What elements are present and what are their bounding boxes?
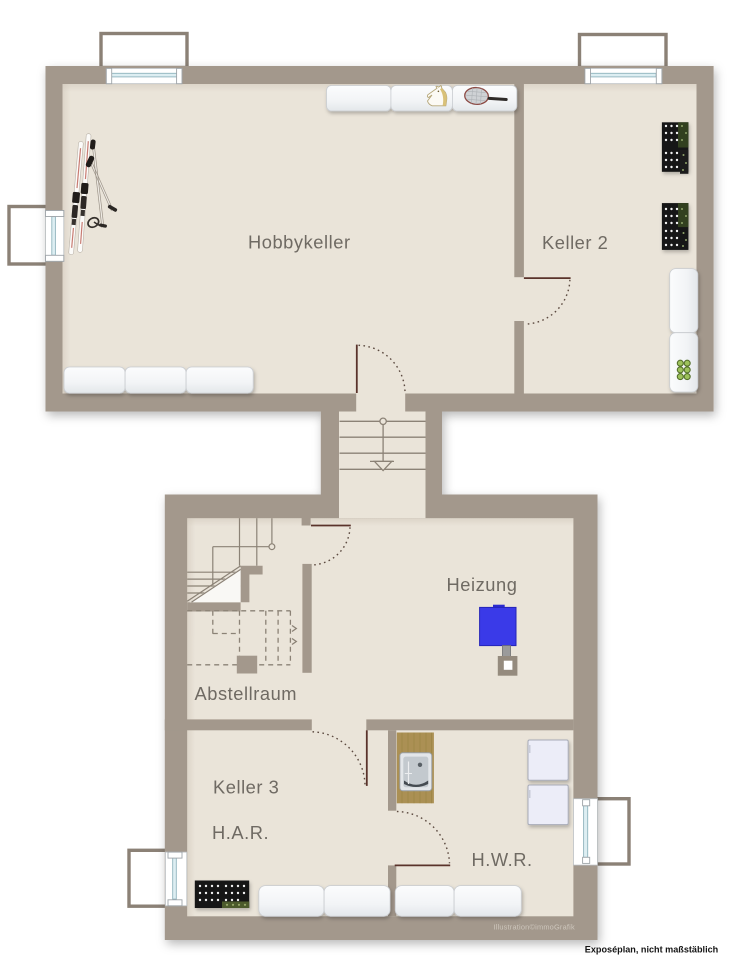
svg-text:Exposéplan, nicht maßstäblich: Exposéplan, nicht maßstäblich [585, 945, 718, 955]
svg-text:Heizung: Heizung [447, 574, 518, 595]
svg-text:H.W.R.: H.W.R. [472, 849, 533, 870]
svg-text:Hobbykeller: Hobbykeller [248, 232, 351, 253]
svg-text:Abstellraum: Abstellraum [195, 683, 298, 704]
svg-text:H.A.R.: H.A.R. [212, 822, 269, 843]
svg-text:Illustration©immoGrafik: Illustration©immoGrafik [493, 923, 575, 932]
svg-text:Keller 2: Keller 2 [542, 232, 608, 253]
svg-text:Keller 3: Keller 3 [213, 777, 279, 798]
